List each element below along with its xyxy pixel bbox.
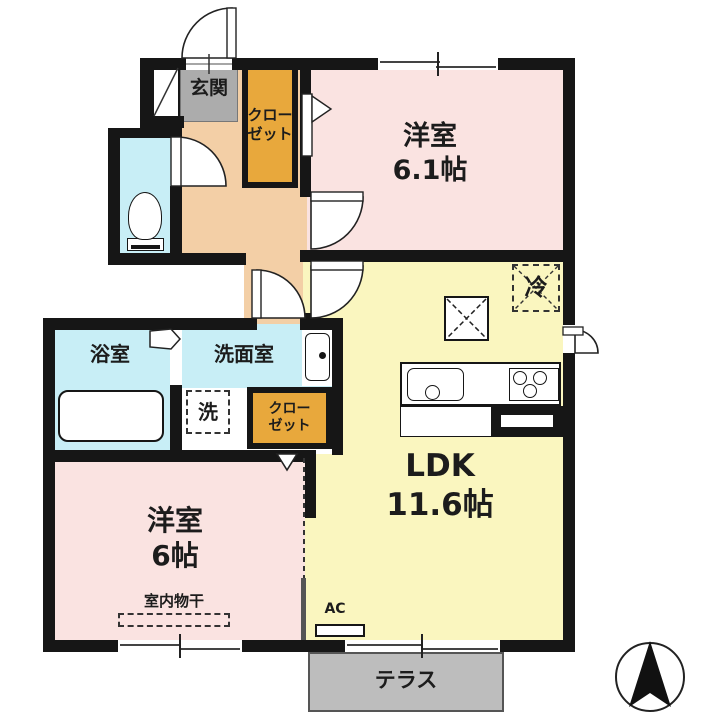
ac-unit bbox=[315, 624, 365, 637]
drying-rack-outline bbox=[118, 613, 230, 627]
wall bbox=[43, 640, 118, 652]
genkan-floor bbox=[180, 66, 238, 122]
wall bbox=[43, 450, 55, 652]
wall bbox=[563, 353, 575, 652]
terrace-sliding-door bbox=[345, 640, 500, 652]
wall bbox=[108, 128, 120, 265]
bath-door-gap bbox=[170, 330, 182, 385]
window-bedroom1 bbox=[378, 58, 498, 70]
toilet-bowl-icon bbox=[128, 192, 162, 240]
shoe-cabinet bbox=[152, 66, 180, 118]
bathtub-icon bbox=[58, 390, 164, 442]
wall bbox=[43, 450, 316, 462]
refrigerator-space bbox=[512, 264, 560, 312]
wall bbox=[170, 186, 182, 253]
window-bedroom2 bbox=[118, 640, 242, 652]
wall bbox=[242, 640, 345, 652]
toilet-tank-stripe bbox=[131, 245, 160, 249]
stove-burner bbox=[513, 371, 527, 385]
entrance-door-leaf bbox=[227, 8, 236, 58]
wall bbox=[300, 250, 575, 262]
wall bbox=[563, 58, 575, 325]
bedroom1-floor bbox=[307, 64, 569, 258]
wall bbox=[170, 128, 182, 138]
wall bbox=[43, 318, 55, 458]
closet-bottom bbox=[247, 387, 332, 449]
stove-burner bbox=[523, 384, 537, 398]
wall bbox=[140, 58, 152, 120]
wall bbox=[43, 318, 257, 330]
service-door-swing bbox=[575, 330, 598, 353]
entrance-door-gap bbox=[186, 58, 232, 70]
wall bbox=[170, 385, 182, 455]
wall bbox=[108, 253, 246, 265]
floor-hatch bbox=[444, 296, 489, 341]
service-door-gap bbox=[563, 325, 575, 353]
kitchen-unit-slot bbox=[501, 415, 553, 427]
exterior-notch bbox=[106, 265, 244, 318]
compass bbox=[615, 642, 685, 712]
stove-burner bbox=[533, 371, 547, 385]
kitchen-cabinet bbox=[400, 406, 492, 437]
wall-thin bbox=[301, 578, 306, 642]
kitchen-faucet bbox=[425, 385, 440, 400]
wall bbox=[305, 453, 316, 518]
terrace-area bbox=[308, 652, 504, 712]
entrance-door-swing bbox=[182, 8, 232, 58]
washbasin-icon bbox=[305, 333, 330, 381]
wall bbox=[332, 322, 343, 455]
wall bbox=[300, 58, 311, 197]
wall bbox=[140, 116, 184, 128]
closet-top bbox=[242, 64, 298, 188]
washer-space bbox=[186, 390, 230, 434]
wall bbox=[500, 640, 575, 652]
washbasin-faucet-dot bbox=[319, 352, 326, 359]
floor-plan: 玄関 クロー ゼット 洋室 6.1帖 冷 浴室 洗面室 洗 クロー ゼット LD… bbox=[0, 0, 720, 720]
